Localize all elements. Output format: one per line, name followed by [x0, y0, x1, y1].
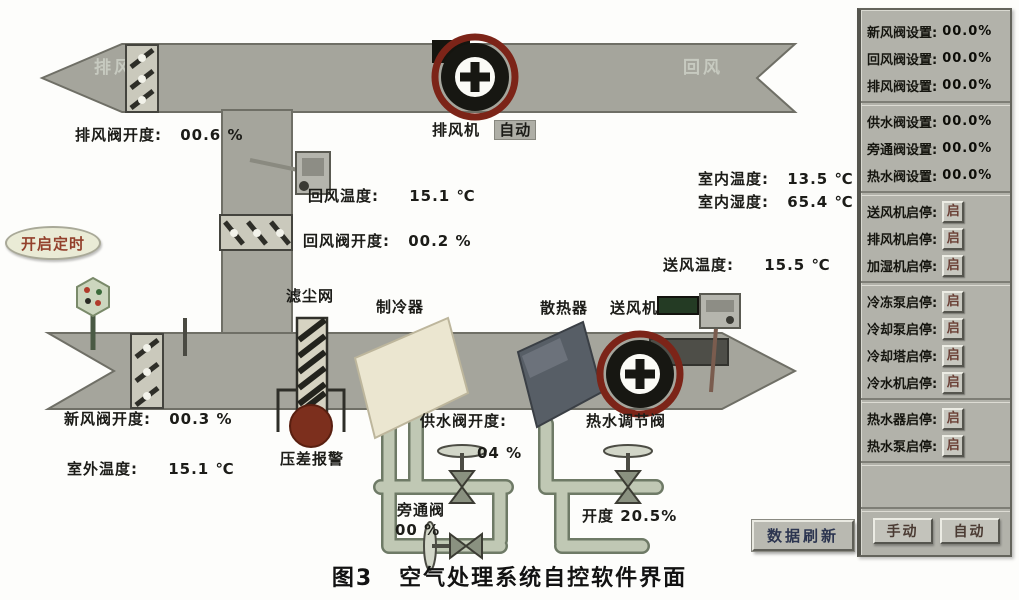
panel-divider — [861, 191, 1010, 196]
return-air-damper-icon[interactable] — [220, 215, 292, 250]
fresh-valve-setting-label: 新风阀设置: — [867, 22, 937, 41]
indoor-temp-value: 13.5 ℃ — [787, 170, 853, 188]
humidifier-start-button[interactable]: 启 — [942, 255, 964, 277]
fresh-valve-reading: 新风阀开度: 00.3 % — [64, 408, 233, 429]
row-humidifier-control: 加湿机启停: 启 — [867, 252, 1005, 279]
outdoor-temp-value: 15.1 ℃ — [168, 460, 234, 478]
panel-divider — [861, 101, 1010, 106]
chilled-pump-control-label: 冷冻泵启停: — [867, 292, 937, 311]
exhaust-fan-start-button[interactable]: 启 — [942, 228, 964, 250]
indoor-temp-reading: 室内温度: 13.5 ℃ — [698, 168, 854, 189]
panel-divider — [861, 507, 1010, 512]
return-air-text: 回风 — [683, 58, 723, 78]
figure-number: 图3 — [332, 566, 373, 591]
exhaust-fan-label: 排风机 — [432, 121, 480, 139]
exhaust-fan-mode-tag[interactable]: 自动 — [494, 120, 536, 140]
return-temp-value: 15.1 ℃ — [409, 187, 475, 205]
return-valve-label: 回风阀开度: — [303, 232, 390, 250]
row-chiller-control: 冷水机启停: 启 — [867, 369, 1005, 396]
hot-water-valve-setting-value: 00.0% — [942, 168, 992, 183]
return-valve-value: 00.2 % — [408, 232, 471, 250]
fresh-air-damper-icon[interactable] — [131, 334, 163, 408]
auto-mode-button[interactable]: 自动 — [940, 518, 1000, 544]
row-cooling-tower-control: 冷却塔启停: 启 — [867, 342, 1005, 369]
start-timer-button[interactable]: 开启定时 — [5, 226, 101, 260]
return-temp-reading: 回风温度: 15.1 ℃ — [308, 185, 476, 206]
exhaust-valve-value: 00.6 % — [180, 126, 243, 144]
row-cooling-pump-control: 冷却泵启停: 启 — [867, 315, 1005, 342]
heater-label: 散热器 — [540, 297, 588, 318]
supply-water-valve-value: 04 % — [477, 444, 522, 462]
dust-filter-icon — [297, 318, 327, 412]
panel-divider — [861, 281, 1010, 286]
panel-divider — [861, 461, 1010, 466]
return-valve-setting-value: 00.0% — [942, 51, 992, 66]
chiller-control-label: 冷水机启停: — [867, 373, 937, 392]
row-supply-water-valve-setting: 供水阀设置: 00.0% — [867, 108, 1005, 135]
control-panel: 新风阀设置: 00.0% 回风阀设置: 00.0% 排风阀设置: 00.0% 供… — [857, 8, 1012, 557]
water-heater-start-button[interactable]: 启 — [942, 408, 964, 430]
exhaust-fan-control-label: 排风机启停: — [867, 229, 937, 248]
exhaust-damper-icon[interactable] — [126, 45, 158, 112]
exhaust-fan-icon[interactable] — [432, 37, 515, 117]
hot-water-valve-setting-label: 热水阀设置: — [867, 166, 937, 185]
panel-spacer — [867, 468, 1005, 505]
chiller-start-button[interactable]: 启 — [942, 372, 964, 394]
ahu-scada-screen: 排风 回风 — [0, 0, 1019, 600]
hot-water-valve-label: 热水调节阀 — [586, 410, 666, 431]
supply-fan-status-box[interactable] — [658, 297, 698, 314]
row-chilled-pump-control: 冷冻泵启停: 启 — [867, 288, 1005, 315]
filter-label: 滤尘网 — [286, 285, 334, 306]
row-return-valve-setting: 回风阀设置: 00.0% — [867, 45, 1005, 72]
supply-fan-control-label: 送风机启停: — [867, 202, 937, 221]
water-heater-control-label: 热水器启停: — [867, 409, 937, 428]
bypass-valve-label: 旁通阀 — [397, 499, 445, 520]
row-supply-fan-control: 送风机启停: 启 — [867, 198, 1005, 225]
exhaust-valve-label: 排风阀开度: — [75, 126, 162, 144]
figure-title: 空气处理系统自控软件界面 — [399, 566, 687, 591]
manual-mode-button[interactable]: 手动 — [873, 518, 933, 544]
row-hot-water-pump-control: 热水泵启停: 启 — [867, 432, 1005, 459]
humidifier-control-label: 加湿机启停: — [867, 256, 937, 275]
exhaust-valve-reading: 排风阀开度: 00.6 % — [75, 124, 244, 145]
outdoor-temp-reading: 室外温度: 15.1 ℃ — [67, 458, 235, 479]
indoor-humidity-value: 65.4 ℃ — [787, 193, 853, 211]
fresh-valve-setting-value: 00.0% — [942, 24, 992, 39]
fresh-valve-value: 00.3 % — [169, 410, 232, 428]
supply-water-valve-label: 供水阀开度: — [420, 410, 507, 431]
data-refresh-button[interactable]: 数据刷新 — [752, 520, 854, 551]
supply-temp-label: 送风温度: — [663, 256, 734, 274]
exhaust-fan-caption: 排风机 自动 — [432, 119, 536, 140]
return-temp-label: 回风温度: — [308, 187, 379, 205]
supply-water-valve-setting-label: 供水阀设置: — [867, 112, 937, 131]
pressure-alarm-lamp — [290, 405, 332, 447]
cooling-pump-start-button[interactable]: 启 — [942, 318, 964, 340]
supply-temp-reading: 送风温度: 15.5 ℃ — [663, 254, 831, 275]
cooler-label: 制冷器 — [376, 296, 424, 317]
indoor-humidity-reading: 室内湿度: 65.4 ℃ — [698, 191, 854, 212]
row-exhaust-fan-control: 排风机启停: 启 — [867, 225, 1005, 252]
hot-water-valve-value: 开度 20.5% — [582, 505, 677, 526]
return-valve-setting-label: 回风阀设置: — [867, 49, 937, 68]
figure-caption: 图3空气处理系统自控软件界面 — [0, 560, 1019, 592]
exhaust-valve-setting-label: 排风阀设置: — [867, 76, 937, 95]
pressure-alarm-label: 压差报警 — [280, 448, 344, 469]
row-exhaust-valve-setting: 排风阀设置: 00.0% — [867, 72, 1005, 99]
fresh-valve-label: 新风阀开度: — [64, 410, 151, 428]
row-bypass-valve-setting: 旁通阀设置: 00.0% — [867, 135, 1005, 162]
cooling-tower-control-label: 冷却塔启停: — [867, 346, 937, 365]
indoor-temp-label: 室内温度: — [698, 170, 769, 188]
bypass-valve-setting-value: 00.0% — [942, 141, 992, 156]
supply-temp-value: 15.5 ℃ — [764, 256, 830, 274]
supply-fan-label: 送风机 — [610, 297, 658, 318]
mode-buttons: 手动 自动 — [867, 514, 1005, 550]
panel-divider — [861, 398, 1010, 403]
exhaust-valve-setting-value: 00.0% — [942, 78, 992, 93]
hot-water-pump-control-label: 热水泵启停: — [867, 436, 937, 455]
cooling-pump-control-label: 冷却泵启停: — [867, 319, 937, 338]
row-hot-water-valve-setting: 热水阀设置: 00.0% — [867, 162, 1005, 189]
bypass-valve-value: 00 % — [395, 521, 440, 539]
indoor-humidity-label: 室内湿度: — [698, 193, 769, 211]
hot-water-pump-start-button[interactable]: 启 — [942, 435, 964, 457]
row-fresh-valve-setting: 新风阀设置: 00.0% — [867, 18, 1005, 45]
outdoor-temp-label: 室外温度: — [67, 460, 138, 478]
cooling-tower-start-button[interactable]: 启 — [942, 345, 964, 367]
row-water-heater-control: 热水器启停: 启 — [867, 405, 1005, 432]
return-valve-reading: 回风阀开度: 00.2 % — [303, 230, 472, 251]
chilled-pump-start-button[interactable]: 启 — [942, 291, 964, 313]
supply-water-valve-setting-value: 00.0% — [942, 114, 992, 129]
supply-fan-start-button[interactable]: 启 — [942, 201, 964, 223]
bypass-valve-setting-label: 旁通阀设置: — [867, 139, 937, 158]
